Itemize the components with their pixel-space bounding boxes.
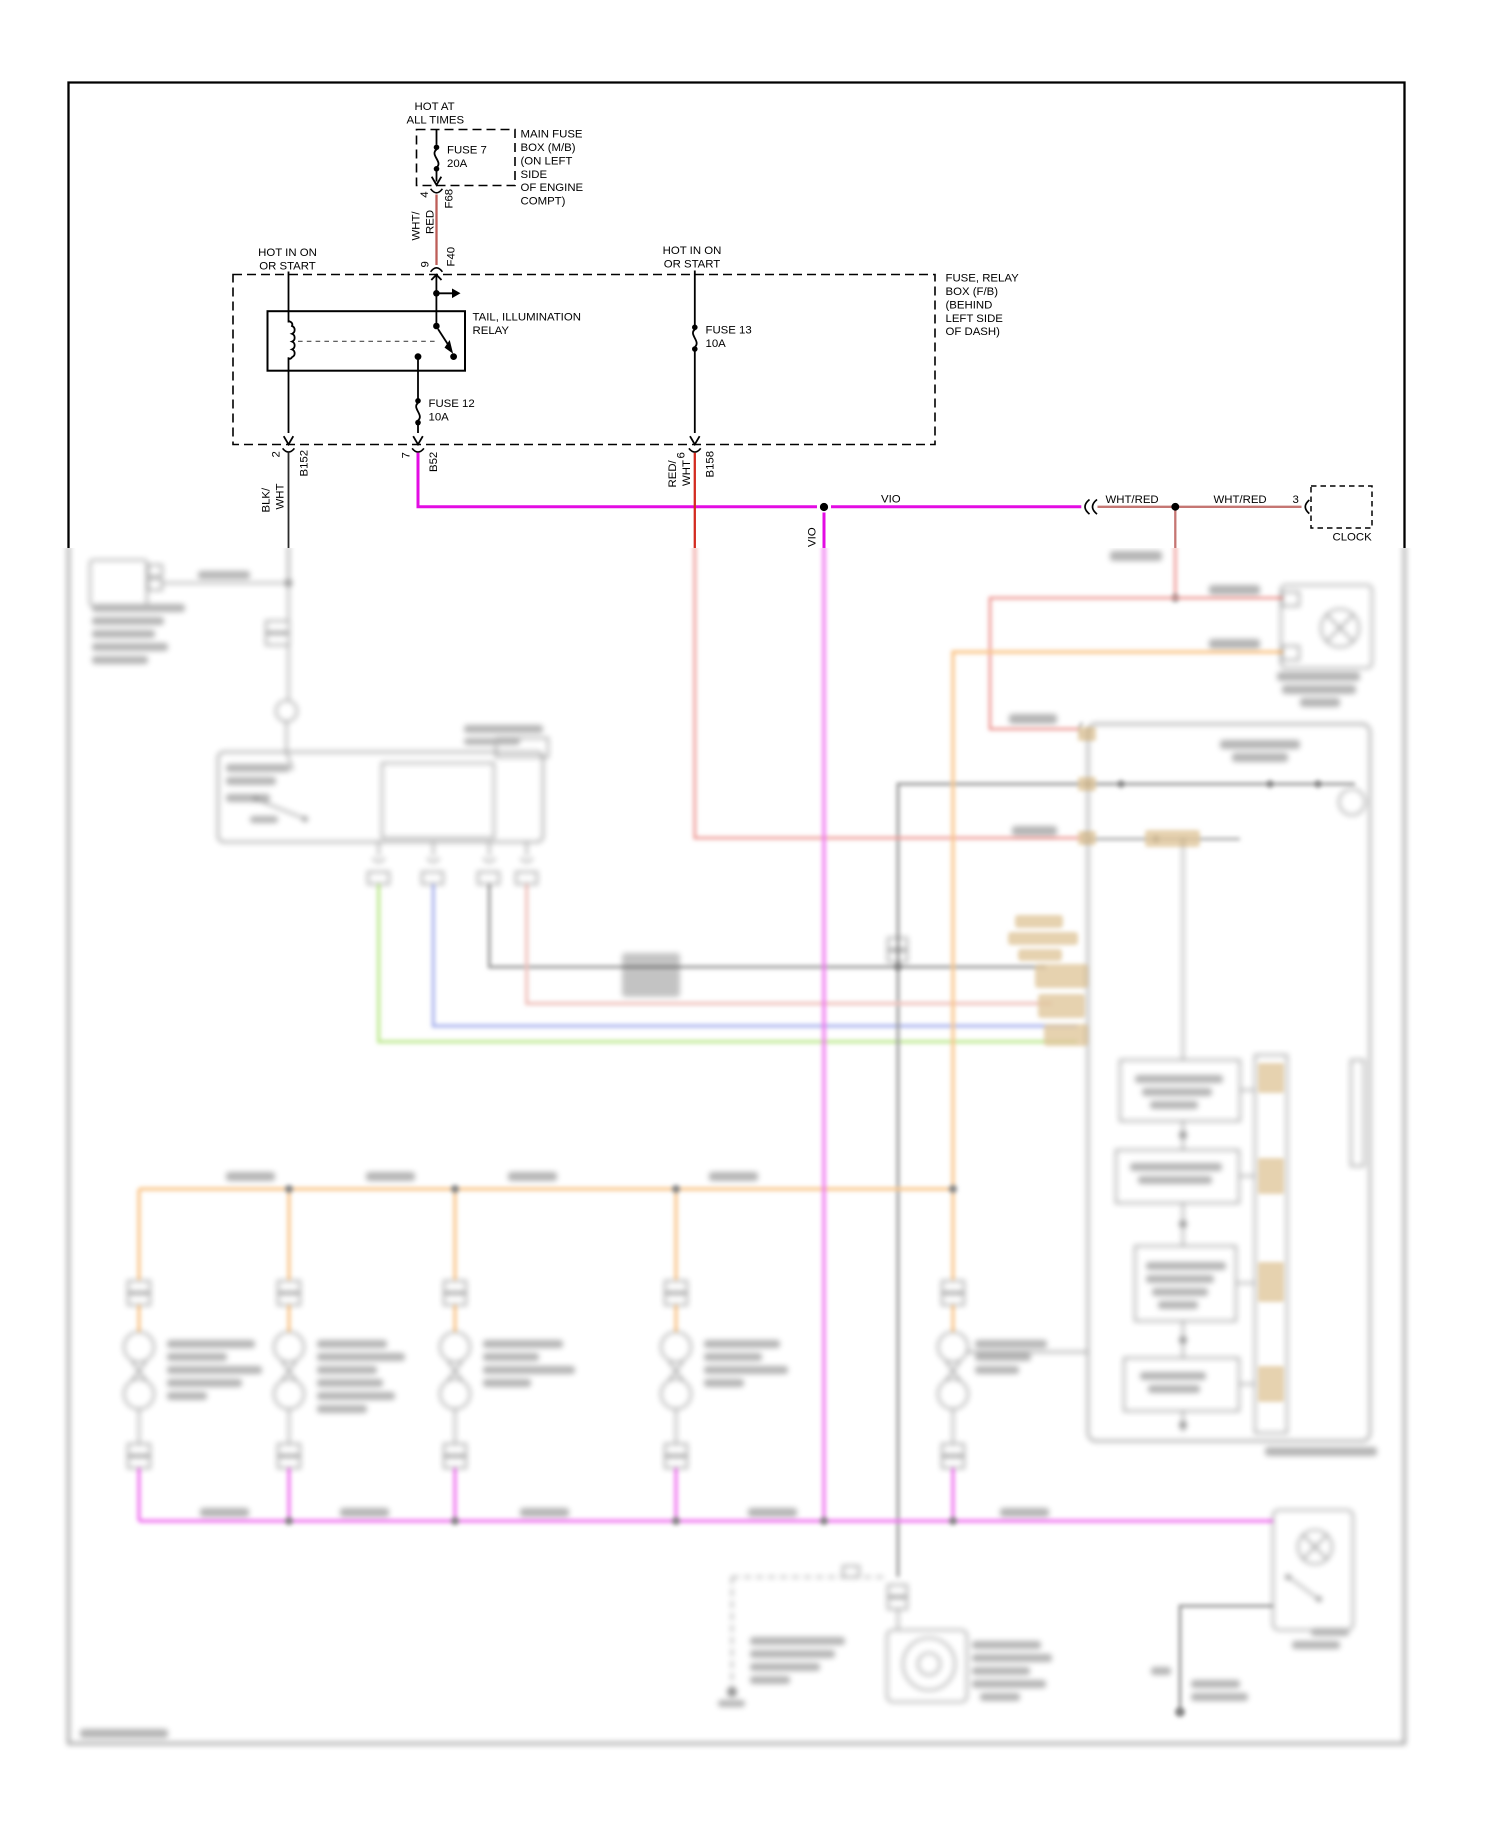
- svg-text:RELAY: RELAY: [473, 325, 510, 337]
- svg-text:MAIN FUSE: MAIN FUSE: [521, 129, 583, 141]
- svg-text:RED: RED: [425, 210, 437, 234]
- svg-text:6: 6: [676, 452, 688, 458]
- svg-text:VIO: VIO: [807, 527, 819, 547]
- svg-text:OF DASH): OF DASH): [946, 326, 1001, 338]
- svg-text:4: 4: [419, 191, 431, 197]
- svg-text:F68: F68: [444, 189, 456, 209]
- svg-text:HOT IN ON: HOT IN ON: [663, 245, 722, 257]
- svg-text:BOX (F/B): BOX (F/B): [946, 286, 999, 298]
- svg-text:2: 2: [271, 451, 283, 457]
- svg-text:10A: 10A: [706, 338, 727, 350]
- svg-text:VIO: VIO: [881, 494, 901, 506]
- svg-text:FUSE 13: FUSE 13: [706, 325, 752, 337]
- svg-text:(ON LEFT: (ON LEFT: [521, 155, 573, 167]
- svg-text:BOX (M/B): BOX (M/B): [521, 142, 576, 154]
- svg-text:LEFT SIDE: LEFT SIDE: [946, 313, 1004, 325]
- svg-text:3: 3: [1293, 494, 1299, 506]
- svg-text:20A: 20A: [447, 158, 468, 170]
- svg-text:CLOCK: CLOCK: [1333, 532, 1373, 544]
- svg-text:BLK/: BLK/: [261, 487, 273, 513]
- svg-text:10A: 10A: [429, 412, 450, 424]
- svg-text:OF ENGINE: OF ENGINE: [521, 182, 584, 194]
- svg-text:COMPT): COMPT): [521, 196, 566, 208]
- svg-text:OR START: OR START: [259, 260, 316, 272]
- svg-text:(BEHIND: (BEHIND: [946, 299, 993, 311]
- svg-text:WHT/: WHT/: [411, 211, 423, 241]
- svg-text:RED/: RED/: [667, 459, 679, 487]
- svg-text:WHT: WHT: [275, 484, 287, 510]
- svg-text:ALL TIMES: ALL TIMES: [407, 114, 465, 126]
- svg-text:FUSE, RELAY: FUSE, RELAY: [946, 273, 1020, 285]
- svg-text:B52: B52: [428, 452, 440, 472]
- svg-text:TAIL, ILLUMINATION: TAIL, ILLUMINATION: [473, 312, 581, 324]
- svg-text:B152: B152: [299, 450, 311, 477]
- svg-text:F40: F40: [446, 247, 458, 267]
- svg-text:9: 9: [420, 261, 432, 267]
- svg-text:OR START: OR START: [664, 258, 721, 270]
- svg-text:WHT/RED: WHT/RED: [1214, 494, 1267, 506]
- svg-text:HOT AT: HOT AT: [415, 101, 455, 113]
- svg-text:B158: B158: [705, 451, 717, 478]
- svg-text:7: 7: [401, 452, 413, 458]
- svg-text:SIDE: SIDE: [521, 169, 548, 181]
- svg-text:FUSE 7: FUSE 7: [447, 145, 487, 157]
- svg-text:FUSE 12: FUSE 12: [429, 398, 475, 410]
- svg-text:WHT: WHT: [681, 460, 693, 486]
- svg-text:WHT/RED: WHT/RED: [1106, 494, 1159, 506]
- svg-text:HOT IN ON: HOT IN ON: [258, 247, 317, 259]
